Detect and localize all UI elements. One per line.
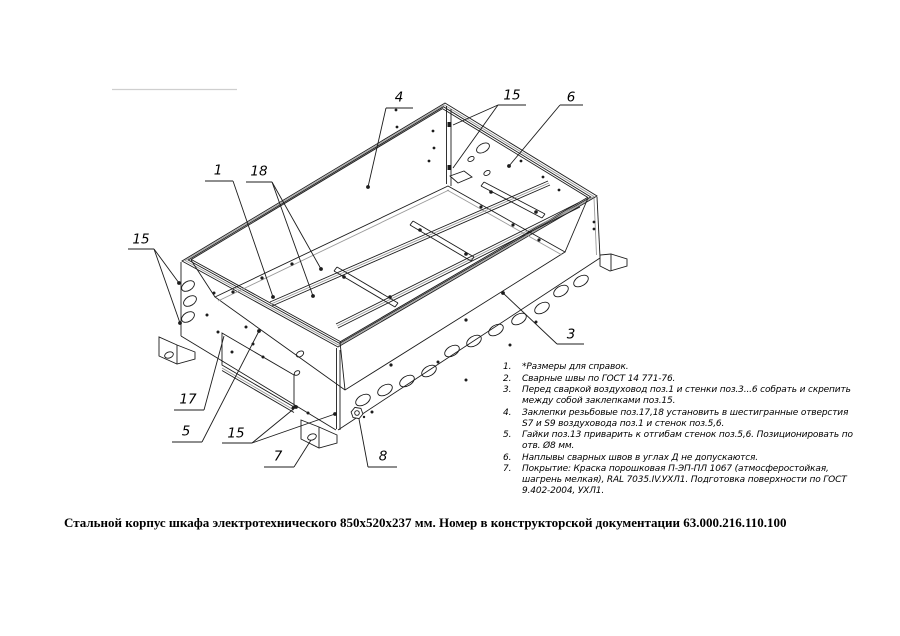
position-label: 7 — [274, 449, 283, 465]
technical-drawing: 41561181517515783 — [0, 0, 900, 636]
note-number: 6. — [503, 453, 522, 464]
note-number: 4. — [503, 408, 522, 430]
note-number: 2. — [503, 374, 522, 385]
note-text: Наплывы сварных швов в углах Д не допуск… — [522, 453, 855, 464]
leader-line — [294, 440, 311, 467]
leader-dot — [311, 294, 315, 298]
position-label: 8 — [379, 449, 388, 465]
position-label: 15 — [503, 88, 520, 104]
position-label: 1 — [214, 163, 223, 179]
leader-line — [509, 105, 560, 166]
note-item-2: 2.Сварные швы по ГОСТ 14 771-76. — [503, 374, 855, 385]
callout-15: 15 — [128, 232, 182, 325]
note-text: Заклепки резьбовые поз.17,18 установить … — [522, 408, 855, 430]
note-text: Покрытие: Краска порошковая П-ЭП-ПЛ 1067… — [522, 464, 855, 497]
note-item-6: 6.Наплывы сварных швов в углах Д не допу… — [503, 453, 855, 464]
position-label: 18 — [250, 164, 267, 180]
position-label: 5 — [182, 424, 191, 440]
position-label: 17 — [179, 392, 197, 408]
leader-dot — [294, 405, 298, 409]
leader-line — [154, 249, 179, 283]
leader-line — [359, 419, 368, 467]
note-text: Гайки поз.13 приварить к отгибам стенок … — [522, 430, 855, 452]
note-number: 7. — [503, 464, 522, 497]
note-number: 3. — [503, 385, 522, 407]
foot-right — [600, 254, 627, 271]
rivet-mark — [448, 165, 452, 170]
leader-dot — [271, 295, 275, 299]
callout-7: 7 — [264, 440, 311, 467]
rear-foot-bracket — [450, 171, 472, 183]
position-label: 4 — [395, 90, 404, 106]
left-wall-cutout — [222, 333, 294, 413]
callout-15: 15 — [453, 88, 526, 169]
note-number: 5. — [503, 430, 522, 452]
position-label: 6 — [567, 90, 576, 106]
note-item-5: 5.Гайки поз.13 приварить к отгибам стено… — [503, 430, 855, 452]
leader-dot — [501, 291, 505, 295]
callout-8: 8 — [359, 419, 397, 467]
technical-notes-list: 1.*Размеры для справок.2.Сварные швы по … — [503, 362, 855, 498]
leader-dot — [177, 281, 181, 285]
note-text: Сварные швы по ГОСТ 14 771-76. — [522, 374, 855, 385]
note-item-7: 7.Покрытие: Краска порошковая П-ЭП-ПЛ 10… — [503, 464, 855, 497]
leader-line — [154, 249, 180, 323]
position-label: 15 — [227, 426, 244, 442]
rivet-mark — [448, 122, 452, 127]
leader-line — [233, 181, 273, 297]
note-number: 1. — [503, 362, 522, 373]
drawing-sheet: 41561181517515783 1.*Размеры для справок… — [0, 0, 900, 636]
note-item-3: 3.Перед сваркой воздуховод поз.1 и стенк… — [503, 385, 855, 407]
left-wall — [180, 262, 336, 430]
leader-dot — [257, 329, 261, 333]
drawing-caption: Стальной корпус шкафа электротехническог… — [64, 515, 854, 531]
note-item-4: 4.Заклепки резьбовые поз.17,18 установит… — [503, 408, 855, 430]
leader-line — [252, 407, 296, 443]
leader-line — [204, 336, 224, 410]
leader-dot — [507, 164, 511, 168]
leader-dot — [319, 267, 323, 271]
duct-ladder — [270, 181, 580, 328]
position-label: 15 — [132, 232, 149, 248]
interior-floor — [191, 186, 588, 390]
cross-rung — [334, 267, 398, 307]
leader-dot — [366, 185, 370, 189]
note-item-1: 1.*Размеры для справок. — [503, 362, 855, 373]
leader-dot — [333, 412, 337, 416]
leader-line — [503, 293, 557, 344]
position-label: 3 — [567, 327, 576, 343]
note-text: *Размеры для справок. — [522, 362, 855, 373]
note-text: Перед сваркой воздуховод поз.1 и стенки … — [522, 385, 855, 407]
leader-dot — [178, 321, 182, 325]
